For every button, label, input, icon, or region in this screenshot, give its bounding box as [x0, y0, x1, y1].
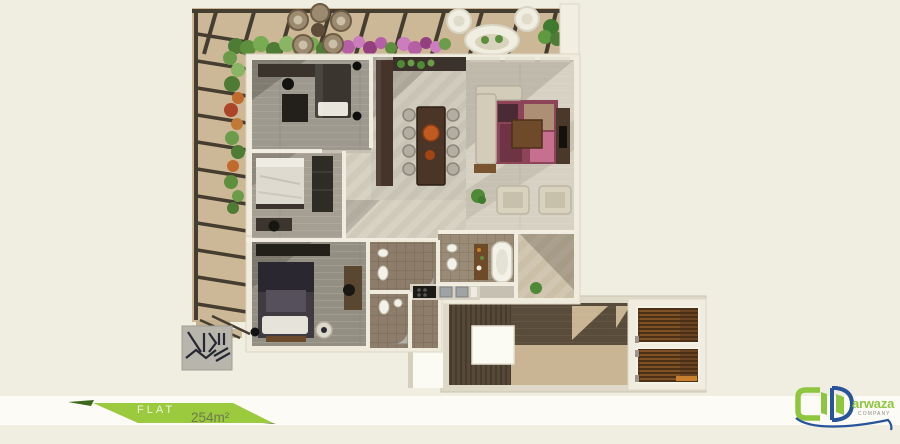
elevator-cab-1: [637, 307, 699, 343]
shelf: [474, 244, 488, 280]
flat-banner: FLAT 254m²: [55, 392, 295, 432]
desk: [258, 64, 320, 77]
area-value: 254m²: [191, 410, 230, 425]
flat-label: FLAT: [137, 404, 175, 416]
terrace-end-wall: [560, 4, 579, 58]
company-logo: arwaza COMPANY: [790, 380, 900, 440]
logo-subtitle-text: COMPANY: [858, 411, 891, 417]
logo-brand-text: arwaza: [852, 396, 895, 411]
wardrobe: [256, 244, 330, 256]
kitchenette: [410, 284, 480, 300]
cabinet: [282, 94, 308, 122]
banner-shape: [93, 403, 273, 423]
banner-accent-left: [68, 400, 94, 406]
office-room: [252, 60, 371, 150]
logo-door-icon: [798, 388, 852, 420]
dining-table: [417, 107, 445, 185]
floor-plan-render: [0, 0, 900, 444]
master-bedroom: [251, 242, 369, 346]
wardrobe: [312, 156, 333, 212]
living-room: [466, 57, 574, 232]
stair-void: [472, 326, 514, 364]
dining-area: [403, 107, 459, 185]
desk-chair: [282, 78, 294, 90]
doormat: [182, 326, 232, 370]
coffee-table: [512, 120, 542, 148]
entrance-hall: [516, 234, 574, 298]
screenshot-root: FLAT 254m² arwaza COMPANY: [0, 0, 900, 444]
bedroom: [252, 153, 344, 238]
elevators: [628, 299, 706, 390]
sofa: [476, 94, 496, 164]
stairwell: [441, 296, 706, 392]
